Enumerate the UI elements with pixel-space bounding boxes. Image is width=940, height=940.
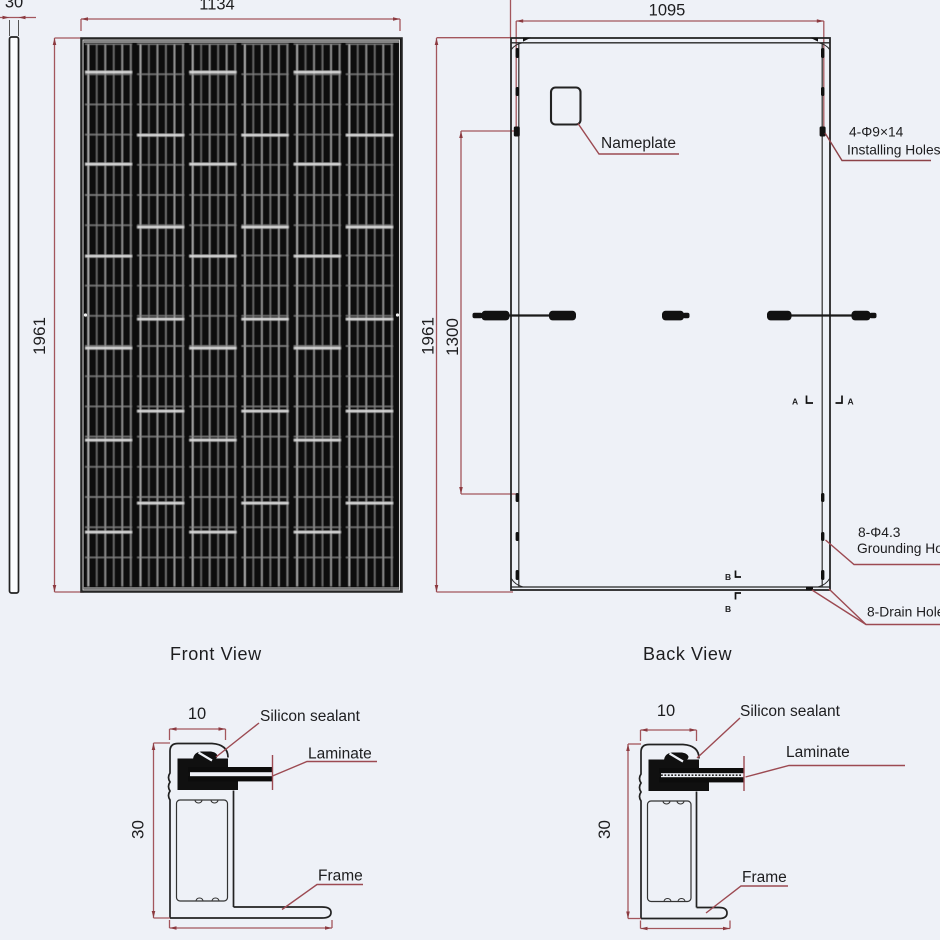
svg-text:Installing Holes: Installing Holes: [847, 143, 940, 158]
svg-text:Frame: Frame: [742, 869, 787, 886]
svg-text:8-Drain Hole: 8-Drain Hole: [867, 605, 940, 620]
svg-text:Frame: Frame: [318, 868, 363, 885]
svg-text:Front View: Front View: [170, 644, 262, 664]
svg-text:Grounding Hole: Grounding Hole: [857, 541, 940, 556]
svg-text:1961: 1961: [30, 317, 49, 355]
svg-text:Silicon sealant: Silicon sealant: [260, 708, 361, 725]
svg-text:4-Φ9×14: 4-Φ9×14: [849, 125, 904, 140]
svg-text:1300: 1300: [443, 318, 462, 356]
svg-text:10: 10: [188, 705, 206, 723]
svg-text:30: 30: [129, 820, 148, 839]
svg-text:30: 30: [595, 820, 614, 839]
svg-text:30: 30: [5, 0, 23, 12]
svg-text:Back View: Back View: [643, 644, 733, 664]
svg-text:A: A: [792, 397, 798, 407]
svg-text:B: B: [725, 572, 731, 582]
svg-text:Silicon sealant: Silicon sealant: [740, 703, 841, 720]
svg-text:1134: 1134: [199, 0, 234, 14]
svg-text:8-Φ4.3: 8-Φ4.3: [858, 525, 901, 540]
svg-text:A: A: [848, 397, 854, 407]
svg-text:Nameplate: Nameplate: [601, 135, 676, 152]
svg-text:1961: 1961: [419, 317, 438, 355]
svg-text:B: B: [725, 604, 731, 614]
svg-text:1095: 1095: [649, 2, 686, 20]
svg-text:Laminate: Laminate: [786, 744, 850, 761]
svg-text:Laminate: Laminate: [308, 746, 372, 763]
svg-text:10: 10: [657, 702, 675, 720]
